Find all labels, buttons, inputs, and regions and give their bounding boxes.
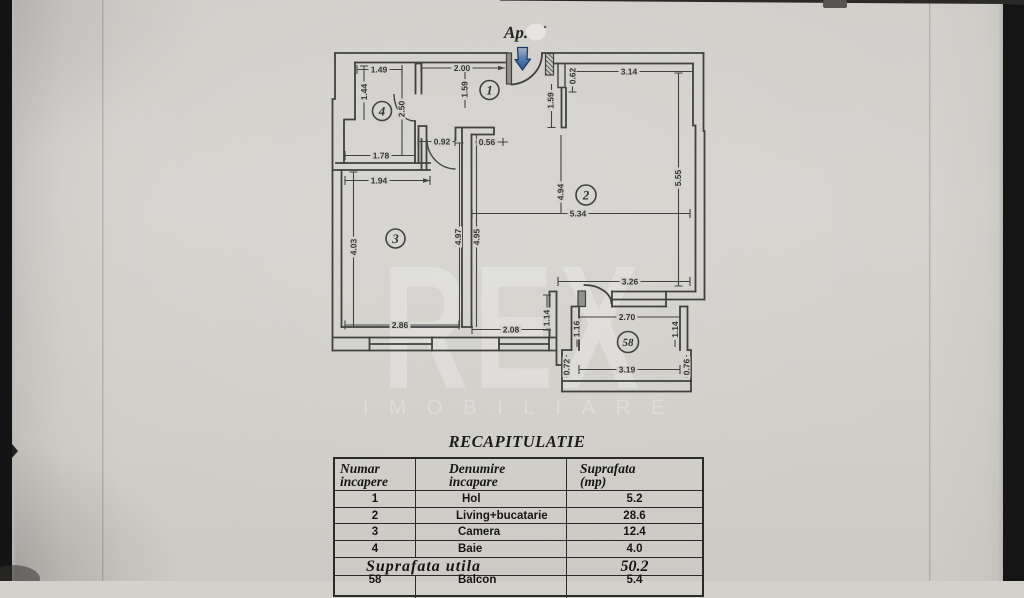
svg-text:4.94: 4.94	[556, 183, 566, 200]
svg-text:2.08: 2.08	[503, 325, 520, 335]
svg-text:0.62: 0.62	[568, 67, 578, 84]
svg-text:1.14: 1.14	[542, 309, 552, 326]
svg-text:1: 1	[486, 83, 493, 98]
svg-text:4: 4	[378, 104, 386, 119]
svg-text:4.95: 4.95	[472, 228, 482, 245]
svg-text:5.55: 5.55	[673, 169, 683, 186]
svg-text:0.76: 0.76	[682, 358, 692, 375]
svg-text:0.92: 0.92	[434, 137, 451, 147]
svg-text:4.03: 4.03	[349, 238, 359, 255]
svg-text:1.16: 1.16	[572, 320, 582, 337]
svg-text:3.14: 3.14	[621, 67, 638, 77]
svg-text:58: 58	[623, 337, 635, 349]
svg-text:1.59: 1.59	[460, 81, 470, 98]
svg-text:1.59: 1.59	[546, 92, 556, 109]
svg-text:3: 3	[391, 231, 399, 246]
svg-text:0.72: 0.72	[562, 358, 572, 375]
svg-text:1.78: 1.78	[373, 151, 390, 161]
svg-text:5.34: 5.34	[570, 209, 587, 219]
svg-text:IMOBILIARE: IMOBILIARE	[363, 396, 685, 419]
svg-text:2.86: 2.86	[392, 320, 409, 330]
svg-text:2.00: 2.00	[454, 63, 471, 73]
svg-text:Ap.: Ap.	[503, 23, 528, 42]
svg-text:3.26: 3.26	[622, 277, 639, 287]
svg-text:2: 2	[582, 188, 590, 203]
svg-text:3.19: 3.19	[619, 365, 636, 375]
svg-text:0.56: 0.56	[479, 137, 496, 147]
svg-text:1.44: 1.44	[359, 83, 369, 100]
svg-text:2.50: 2.50	[397, 100, 407, 117]
svg-text:1.49: 1.49	[371, 65, 388, 75]
svg-text:2.70: 2.70	[619, 312, 636, 322]
svg-text:1.94: 1.94	[371, 176, 388, 186]
svg-text:4.97: 4.97	[453, 228, 463, 245]
svg-text:1.14: 1.14	[670, 321, 680, 338]
